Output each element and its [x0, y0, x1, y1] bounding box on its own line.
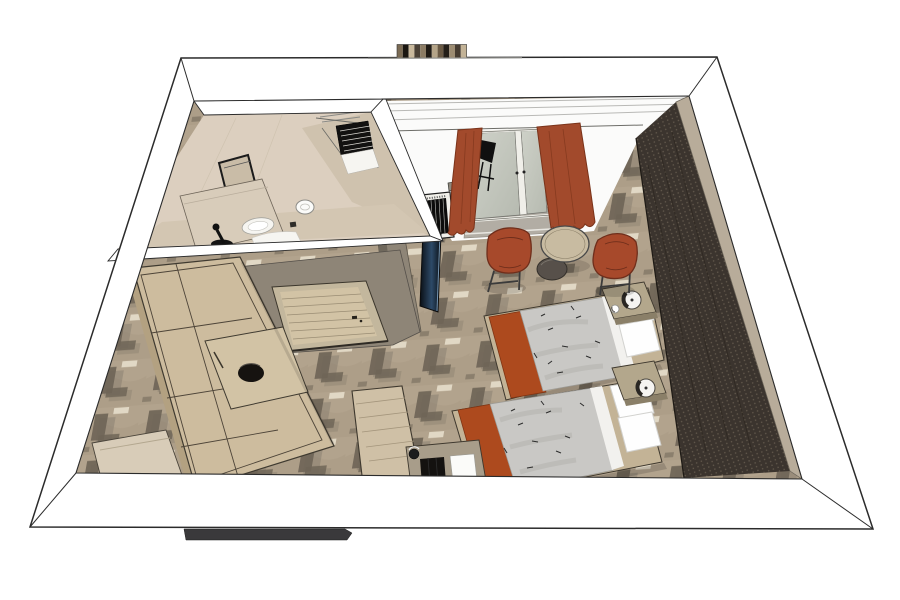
- floorplan-canvas: [0, 0, 900, 600]
- roof-vent-strip: [368, 45, 522, 59]
- cup: [611, 305, 619, 313]
- lounge-chair-left: [487, 228, 531, 273]
- door-handle: [352, 316, 357, 319]
- threshold-bar: [184, 529, 352, 540]
- lounge-chair-right: [593, 234, 637, 279]
- pillow-2: [619, 319, 660, 357]
- floorplan-3d-render: [0, 0, 900, 600]
- tv-panel: [420, 231, 441, 312]
- round-table: [541, 226, 589, 262]
- door-keyhole: [360, 320, 363, 323]
- table-lamp-2: [637, 379, 655, 397]
- door-handle: [516, 172, 519, 175]
- door-handle-2: [523, 171, 526, 174]
- floor-drain: [290, 222, 297, 228]
